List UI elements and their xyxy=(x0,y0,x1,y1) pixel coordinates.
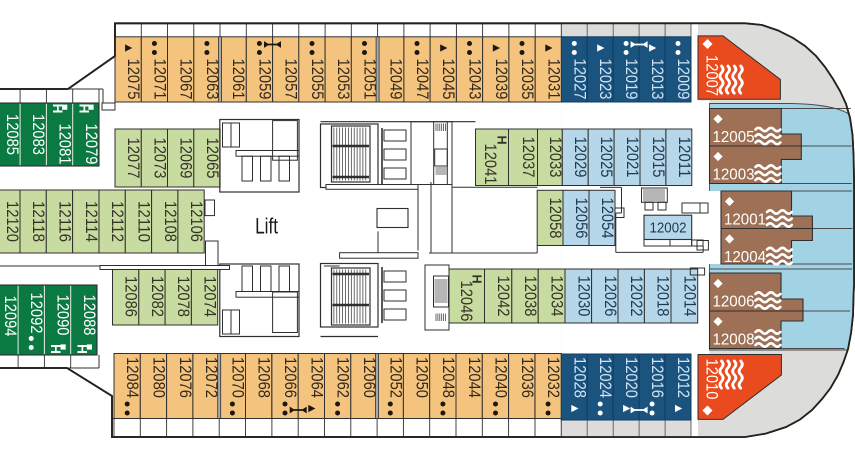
svg-text:12014: 12014 xyxy=(680,276,698,317)
svg-text:12058: 12058 xyxy=(546,198,564,239)
svg-text:12078: 12078 xyxy=(174,276,192,317)
svg-text:12068: 12068 xyxy=(255,357,273,398)
svg-text:12009: 12009 xyxy=(674,59,692,100)
svg-text:12013: 12013 xyxy=(648,59,666,100)
svg-text:12022: 12022 xyxy=(627,276,645,317)
svg-text:12076: 12076 xyxy=(176,357,194,398)
svg-text:12005: 12005 xyxy=(713,129,755,146)
svg-text:12026: 12026 xyxy=(601,276,619,317)
svg-text:12059: 12059 xyxy=(255,59,273,100)
svg-text:12084: 12084 xyxy=(123,357,141,398)
svg-text:12020: 12020 xyxy=(622,357,640,398)
svg-text:12090: 12090 xyxy=(54,295,72,336)
svg-text:12050: 12050 xyxy=(413,357,431,398)
svg-text:12041: 12041 xyxy=(481,144,499,185)
svg-text:12011: 12011 xyxy=(675,137,693,178)
svg-text:12086: 12086 xyxy=(122,276,140,317)
svg-text:12006: 12006 xyxy=(713,294,755,311)
svg-text:12053: 12053 xyxy=(334,59,352,100)
svg-text:12003: 12003 xyxy=(713,167,755,184)
svg-text:12015: 12015 xyxy=(649,137,667,178)
svg-text:12094: 12094 xyxy=(1,296,19,337)
svg-text:12075: 12075 xyxy=(124,59,142,100)
svg-text:12062: 12062 xyxy=(334,357,352,398)
svg-text:12064: 12064 xyxy=(307,357,325,398)
svg-text:12047: 12047 xyxy=(413,59,431,100)
svg-text:12070: 12070 xyxy=(228,357,246,398)
svg-text:12029: 12029 xyxy=(571,137,589,178)
svg-text:12082: 12082 xyxy=(148,276,166,317)
svg-text:12030: 12030 xyxy=(574,276,592,317)
svg-text:Lift: Lift xyxy=(255,214,278,239)
svg-text:12035: 12035 xyxy=(518,59,536,100)
svg-text:12044: 12044 xyxy=(465,357,483,398)
svg-text:12037: 12037 xyxy=(519,137,537,178)
svg-text:12008: 12008 xyxy=(713,332,755,349)
svg-text:12012: 12012 xyxy=(674,357,692,398)
svg-text:12073: 12073 xyxy=(150,138,168,179)
svg-text:12065: 12065 xyxy=(203,138,221,179)
svg-text:12036: 12036 xyxy=(518,357,536,398)
svg-text:12049: 12049 xyxy=(387,59,405,100)
svg-text:12054: 12054 xyxy=(598,198,616,239)
svg-text:12033: 12033 xyxy=(546,137,564,178)
svg-text:12046: 12046 xyxy=(457,281,475,322)
svg-text:12038: 12038 xyxy=(521,276,539,317)
svg-text:12112: 12112 xyxy=(108,201,126,242)
svg-text:12055: 12055 xyxy=(308,59,326,100)
svg-text:12023: 12023 xyxy=(596,59,614,100)
svg-text:12114: 12114 xyxy=(82,201,100,242)
svg-text:12116: 12116 xyxy=(55,201,73,242)
svg-text:12002: 12002 xyxy=(650,221,687,237)
svg-text:12042: 12042 xyxy=(494,276,512,317)
svg-text:12034: 12034 xyxy=(548,276,566,317)
svg-text:12067: 12067 xyxy=(177,59,195,100)
svg-text:H: H xyxy=(470,274,484,283)
svg-text:12032: 12032 xyxy=(544,357,562,398)
svg-text:12069: 12069 xyxy=(177,138,195,179)
svg-text:12120: 12120 xyxy=(3,201,21,242)
svg-text:12108: 12108 xyxy=(161,201,179,242)
svg-text:12021: 12021 xyxy=(623,137,641,178)
svg-text:12004: 12004 xyxy=(724,249,766,266)
svg-text:12079: 12079 xyxy=(82,124,100,165)
svg-text:12001: 12001 xyxy=(724,212,766,229)
svg-text:12083: 12083 xyxy=(29,114,47,155)
svg-text:12081: 12081 xyxy=(56,124,74,165)
svg-text:12016: 12016 xyxy=(648,357,666,398)
svg-text:12092: 12092 xyxy=(27,293,45,334)
svg-text:12007: 12007 xyxy=(703,55,721,96)
svg-text:12027: 12027 xyxy=(570,59,588,100)
svg-text:12071: 12071 xyxy=(150,59,168,100)
svg-text:12085: 12085 xyxy=(3,114,21,155)
svg-text:12063: 12063 xyxy=(203,59,221,100)
svg-text:12031: 12031 xyxy=(544,59,562,100)
svg-text:12077: 12077 xyxy=(124,138,142,179)
svg-text:12080: 12080 xyxy=(150,357,168,398)
svg-text:12018: 12018 xyxy=(654,276,672,317)
svg-text:12118: 12118 xyxy=(29,201,47,242)
svg-text:12057: 12057 xyxy=(282,59,300,100)
svg-text:12061: 12061 xyxy=(229,59,247,100)
svg-text:H: H xyxy=(495,135,509,144)
svg-text:12024: 12024 xyxy=(596,357,614,398)
svg-text:12088: 12088 xyxy=(80,295,98,336)
svg-text:12052: 12052 xyxy=(386,357,404,398)
svg-text:12025: 12025 xyxy=(597,137,615,178)
svg-text:12043: 12043 xyxy=(466,59,484,100)
svg-text:12060: 12060 xyxy=(360,357,378,398)
svg-text:12010: 12010 xyxy=(703,359,721,400)
svg-text:12074: 12074 xyxy=(201,276,219,317)
svg-text:12056: 12056 xyxy=(572,198,590,239)
svg-text:12028: 12028 xyxy=(570,357,588,398)
svg-text:12066: 12066 xyxy=(281,357,299,398)
svg-text:12048: 12048 xyxy=(439,357,457,398)
svg-text:12039: 12039 xyxy=(492,59,510,100)
svg-text:12040: 12040 xyxy=(492,357,510,398)
svg-text:12019: 12019 xyxy=(622,59,640,100)
svg-text:12110: 12110 xyxy=(134,201,152,242)
svg-text:12106: 12106 xyxy=(187,201,205,242)
svg-text:12045: 12045 xyxy=(439,59,457,100)
